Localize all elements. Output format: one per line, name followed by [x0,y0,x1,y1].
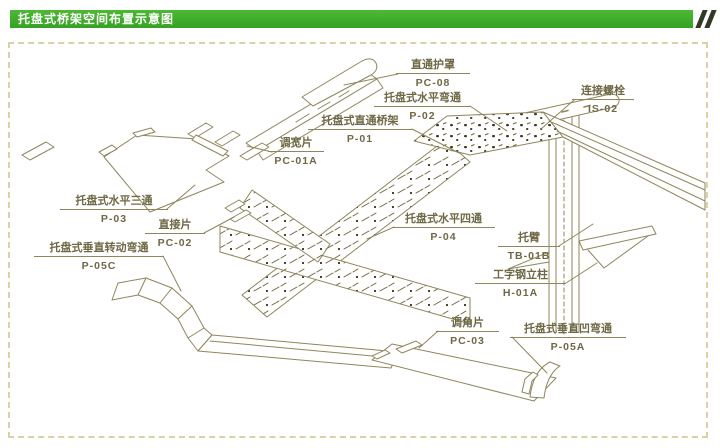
label-pc01a: 调宽片 PC-01A [268,137,324,168]
part-name: 连接螺栓 [572,85,634,100]
part-name: 直通护罩 [396,59,470,74]
label-tb01b: 托臂 TB-01B [498,232,560,263]
label-p05c: 托盘式垂直转动弯通 P-05C [34,242,164,273]
part-name: 托盘式水平三通 [60,195,168,210]
part-name: 调宽片 [268,137,324,152]
label-h01a: 工字钢立柱 H-01A [475,269,566,300]
vertical-rotating-bend [112,278,212,351]
label-p04: 托盘式水平四通 P-04 [392,213,495,244]
part-name: 托盘式水平四通 [392,213,495,228]
part-code: P-05A [510,338,626,354]
part-name: 托盘式垂直凹弯通 [510,323,626,338]
label-pc03: 调角片 PC-03 [436,317,499,348]
part-code: TB-01B [498,247,560,263]
part-code: H-01A [475,284,566,300]
part-code: P-05C [34,257,164,273]
bottom-run-tray [198,335,398,368]
part-code: PC-01A [268,152,324,168]
part-name: 工字钢立柱 [475,269,566,284]
label-p05a: 托盘式垂直凹弯通 P-05A [510,323,626,354]
part-name: 托盘式垂直转动弯通 [34,242,164,257]
part-code: IS-02 [572,100,634,116]
part-name: 直接片 [145,219,205,234]
label-pc08: 直通护罩 PC-08 [396,59,470,90]
part-name: 托盘式水平弯通 [374,92,471,107]
label-is02: 连接螺栓 IS-02 [572,85,634,116]
part-name: 托盘式直通桥架 [308,115,412,130]
part-name: 调角片 [436,317,499,332]
part-code: PC-08 [396,74,470,90]
part-name: 托臂 [498,232,560,247]
part-code: PC-03 [436,332,499,348]
part-code: P-04 [392,228,495,244]
